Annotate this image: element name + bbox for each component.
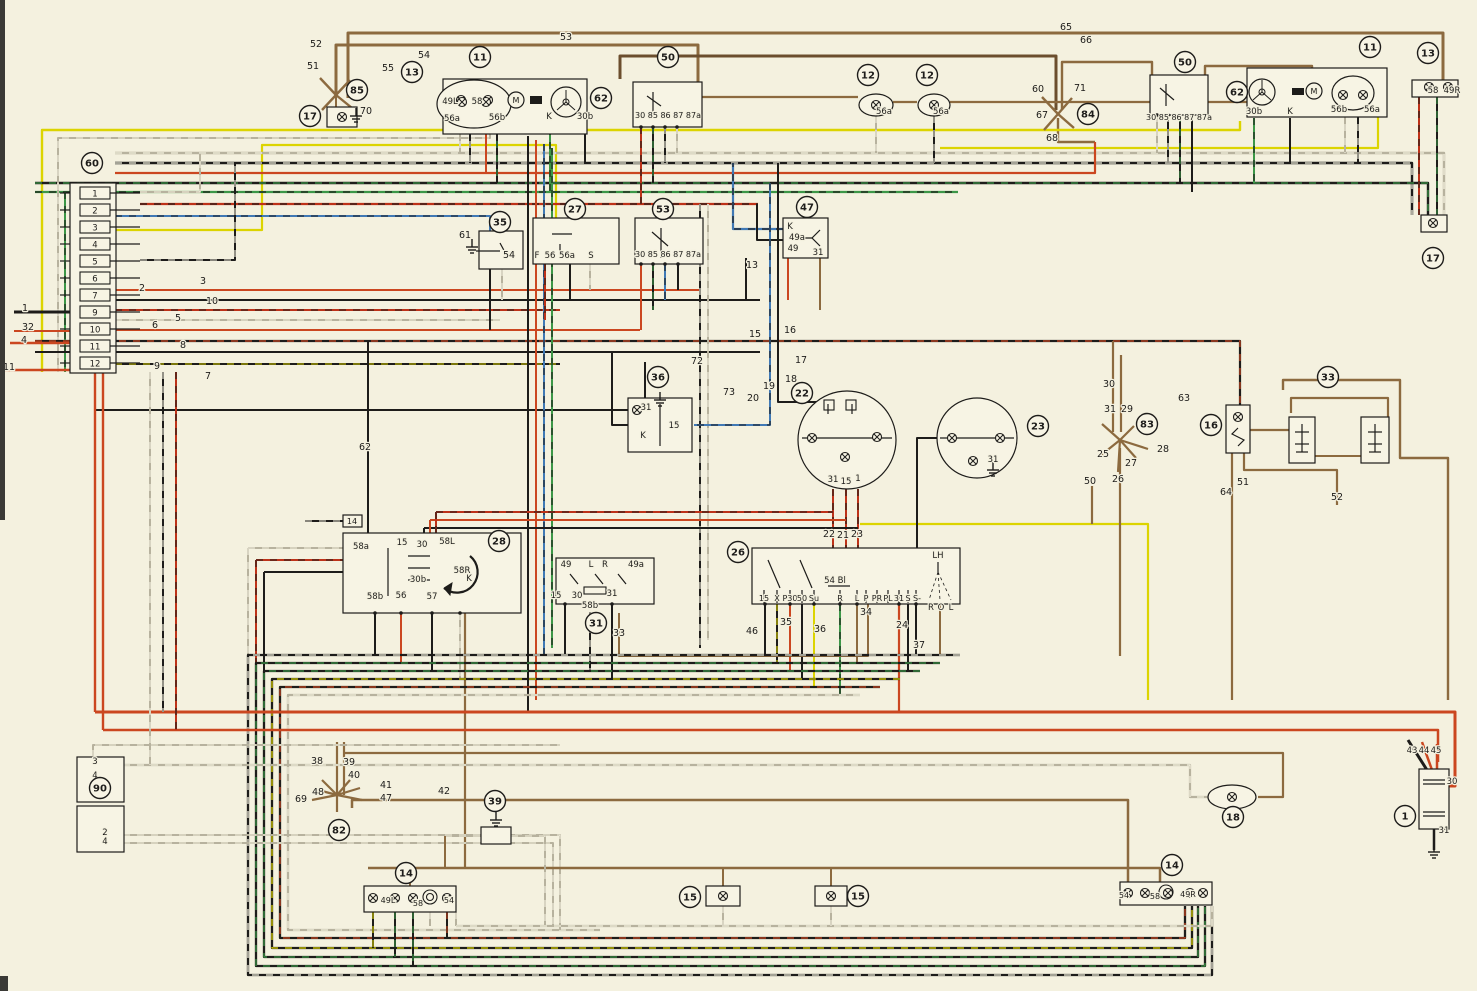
wire <box>95 712 1455 786</box>
wire <box>320 78 336 95</box>
wire-label: 15 <box>841 477 852 487</box>
component-number: 23 <box>1031 422 1045 433</box>
wire <box>123 843 553 926</box>
wire-label: PL <box>883 594 893 603</box>
wire-label: 54 <box>503 250 515 261</box>
wire-layer <box>4 33 1455 975</box>
component-number: 17 <box>303 112 317 123</box>
wire-label: 50 <box>1084 476 1096 487</box>
wire-label: 14 <box>347 517 357 526</box>
component-number: 83 <box>1140 420 1154 431</box>
wire-label: 31 <box>641 403 652 413</box>
component-number: 35 <box>493 218 507 229</box>
scan-edge <box>0 0 5 520</box>
component-number: 14 <box>399 869 413 880</box>
wire-label: 30 <box>572 591 583 601</box>
wire-label: 70 <box>360 106 372 117</box>
wire-label: 30b <box>577 112 593 122</box>
wire-label: PR <box>872 594 883 603</box>
wire-label: 41 <box>380 780 392 791</box>
terminal-dot <box>651 125 655 129</box>
wire-label: 19 <box>763 381 775 392</box>
wire-label: 31 <box>607 589 618 599</box>
fuse-number: 7 <box>92 292 97 302</box>
component-number: 28 <box>492 537 506 548</box>
wire-label: L <box>949 603 954 613</box>
component-box <box>481 827 511 844</box>
wire <box>337 795 362 800</box>
component-number: 11 <box>1363 43 1377 54</box>
wire-label: 30 <box>1103 379 1115 390</box>
wire-label: K <box>787 222 793 232</box>
wire-label: 13 <box>746 260 758 271</box>
component-number: 60 <box>85 159 99 170</box>
wire-label: 58 <box>472 97 483 107</box>
wire-label: 53 <box>560 32 572 43</box>
wire-label: 71 <box>1074 83 1086 94</box>
wiring-diagram-page: 1234567910111252515554537049L5856a56bK30… <box>0 0 1477 991</box>
wire-label: 58 <box>413 899 423 908</box>
wire <box>35 341 1240 406</box>
wire-label: 48 <box>312 787 324 798</box>
wire-label: 49L <box>442 97 458 107</box>
wire-stripe <box>256 663 1205 966</box>
wire-label: 30b <box>1246 107 1262 117</box>
component-box <box>633 82 702 127</box>
wire-label: 54 Bl <box>824 576 846 586</box>
wire-label: 51 <box>307 61 319 72</box>
wire-label: 49a <box>789 233 805 243</box>
wire-label: 29 <box>1121 404 1133 415</box>
wire-label: 56a <box>933 107 949 117</box>
wire-label: 10 <box>206 296 218 307</box>
wire-label: 58b <box>582 601 598 611</box>
wire-label: 25 <box>1097 449 1109 460</box>
wire-label: 57 <box>427 592 438 602</box>
wire-label: 56a <box>876 107 892 117</box>
wire-label: S- <box>913 594 921 603</box>
wire-label: 46 <box>746 626 758 637</box>
wire-label: LH <box>932 551 943 561</box>
wire-label: X <box>774 594 780 603</box>
component-number: 62 <box>1230 88 1244 99</box>
wire-stripe <box>115 163 1412 215</box>
wire-label: 32 <box>22 322 34 333</box>
connector-block <box>1292 88 1304 95</box>
wire-label: 3 <box>200 276 206 287</box>
wire-label: 50 <box>797 594 807 603</box>
wire <box>35 183 1428 215</box>
wire <box>1058 114 1074 128</box>
wire-label: 47 <box>380 793 392 804</box>
wire-label: 30 <box>1447 777 1458 787</box>
component-number: 39 <box>488 797 502 808</box>
wire-label: 56a <box>1364 105 1380 115</box>
fuse-number: 1 <box>92 190 97 200</box>
component-number: 62 <box>594 94 608 105</box>
wire-label: 6 <box>152 320 158 331</box>
wire-stripe <box>123 843 553 926</box>
wire-label: 73 <box>723 387 735 398</box>
component-number: 17 <box>1426 254 1440 265</box>
wire-label: K <box>640 431 646 441</box>
component-number: 12 <box>920 71 934 82</box>
wire-label: 49a <box>628 560 644 570</box>
terminal-dot <box>639 262 643 266</box>
wire <box>511 836 545 926</box>
wire-label: 54 <box>418 50 430 61</box>
wire-label: 66 <box>1080 35 1092 46</box>
wire <box>368 868 1160 884</box>
wire-label: 28 <box>1157 444 1169 455</box>
terminal-dot <box>676 262 680 266</box>
wire-label: 63 <box>1178 393 1190 404</box>
wire <box>123 765 1208 797</box>
wire-label: K <box>546 112 552 122</box>
wire-label: 30 85 86 87 87a <box>1146 113 1212 122</box>
wire-label: R <box>837 594 843 603</box>
wire-label: 43 <box>1407 746 1418 756</box>
wire-label: 4 <box>102 837 107 847</box>
component-number: 84 <box>1081 110 1095 121</box>
component-number: 26 <box>731 548 745 559</box>
terminal-dot <box>639 125 643 129</box>
fuse-number: 5 <box>92 258 97 268</box>
wire-label: 37 <box>913 640 925 651</box>
wire-label: 30b <box>410 575 426 585</box>
wire-stripe <box>58 130 490 372</box>
wire-label: K <box>1287 107 1293 117</box>
component-number: 15 <box>683 893 697 904</box>
terminal-dot <box>663 262 667 266</box>
wire-label: 52 <box>1331 492 1343 503</box>
wire-label: P30 <box>782 594 797 603</box>
wire-stripe <box>511 836 545 926</box>
wire-label: 27 <box>1125 458 1137 469</box>
component-number: 90 <box>93 784 107 795</box>
wire-label: 21 <box>837 530 849 541</box>
wire-label: 61 <box>459 230 471 241</box>
wire <box>256 663 1205 966</box>
wire-label: 34 <box>860 607 872 618</box>
wire-label: 42 <box>438 786 450 797</box>
component-number: 31 <box>589 619 603 630</box>
wire-stripe <box>140 163 235 260</box>
component-number: 12 <box>861 71 875 82</box>
wire-label: 31 <box>813 248 824 258</box>
wire-label: 9 <box>154 361 160 372</box>
component-number: 53 <box>656 205 670 216</box>
wire-label: 64 <box>1220 487 1232 498</box>
wire-stripe <box>456 906 1212 926</box>
wire-label: M <box>513 96 520 105</box>
component-box <box>1419 769 1449 829</box>
component-number: 50 <box>661 53 675 64</box>
wire <box>4 370 103 730</box>
wire-label: P <box>864 594 869 603</box>
terminal-dot <box>399 611 403 615</box>
wire-label: 49R <box>1180 890 1196 899</box>
terminal-dot <box>675 125 679 129</box>
fuse-number: 9 <box>92 309 97 319</box>
wire-label: 1 <box>855 474 860 484</box>
wire-stripe <box>35 183 1428 215</box>
wire-label: R <box>602 560 608 570</box>
wire-label: 15 <box>749 329 761 340</box>
wire-label: 16 <box>784 325 796 336</box>
wire-label: S <box>905 594 910 603</box>
wire-label: 62 <box>359 442 371 453</box>
connector-block <box>530 96 542 104</box>
wire-label: 58L <box>439 537 455 547</box>
wire-label: 15 <box>669 421 680 431</box>
wire-label: 56b <box>489 113 505 123</box>
scan-edge <box>0 976 8 991</box>
wire-label: 2 <box>139 283 145 294</box>
wiring-diagram-svg: 1234567910111252515554537049L5856a56bK30… <box>0 0 1477 991</box>
wire-label: M <box>1311 87 1318 96</box>
wire-label: 30 85 86 87 87a <box>635 111 701 120</box>
wire-label: 15 <box>759 594 769 603</box>
component-number: 85 <box>350 86 364 97</box>
wire-label: 55 <box>382 63 394 74</box>
wire-label: 56a <box>444 114 460 124</box>
wire-label: 67 <box>1036 110 1048 121</box>
wire <box>456 906 1212 926</box>
component-number: 15 <box>851 892 865 903</box>
wire-label: 23 <box>851 529 863 540</box>
wire-label: L <box>589 560 594 570</box>
wire <box>58 130 490 372</box>
wire <box>140 163 235 260</box>
wire-label: 15 <box>551 591 562 601</box>
wire-label: 4 <box>21 335 27 346</box>
wire-label: 54 <box>1119 891 1129 900</box>
wire <box>93 745 560 757</box>
wire-stripe <box>93 745 560 757</box>
wire-label: 31 <box>1104 404 1116 415</box>
wire-label: 72 <box>691 356 703 367</box>
wire-label: 17 <box>795 355 807 366</box>
wire-label: 44 <box>1419 746 1430 756</box>
fuse-number: 4 <box>92 241 97 251</box>
component-box <box>479 231 523 269</box>
terminal-dot <box>563 602 567 606</box>
wire-label: 58b <box>367 592 383 602</box>
wire-label: Su <box>809 594 819 603</box>
component-number: 13 <box>1421 49 1435 60</box>
wire-label: 58 <box>1428 86 1439 96</box>
wire-label: 56a <box>559 251 575 261</box>
component-number: 1 <box>1402 812 1409 823</box>
component-box <box>1150 75 1208 115</box>
wire-label: 54 <box>444 896 454 905</box>
wire-label: S <box>588 251 593 261</box>
fuse-number: 12 <box>90 360 101 370</box>
wire-label: K <box>466 574 472 584</box>
wire-label: 30 85 86 87 87a <box>635 250 701 259</box>
wire-label: 31 <box>988 455 999 465</box>
wire-label: 36 <box>814 624 826 635</box>
wire-label: 5 <box>175 313 181 324</box>
wire-label: 68 <box>1046 133 1058 144</box>
fuse-number: 11 <box>90 343 101 353</box>
wire-label: 30 <box>417 540 428 550</box>
wire <box>917 438 937 548</box>
component-number: 50 <box>1178 58 1192 69</box>
terminal-dot <box>458 611 462 615</box>
wire-label: 31 <box>828 475 839 485</box>
terminal-dot <box>610 602 614 606</box>
wire-label: 58 <box>1150 892 1160 901</box>
wire-label: 60 <box>1032 84 1044 95</box>
wire <box>619 604 868 656</box>
wire-label: R <box>928 603 934 613</box>
wire-label: 49R <box>1444 86 1461 96</box>
wire <box>123 835 560 930</box>
wire-label: 52 <box>310 39 322 50</box>
terminal-dot <box>651 262 655 266</box>
wire <box>115 163 1412 215</box>
wire-label: 31 <box>1439 826 1450 836</box>
wire <box>1291 398 1388 417</box>
wire-label: 58a <box>353 542 369 552</box>
wire-label: 65 <box>1060 22 1072 33</box>
wire-label: 69 <box>295 794 307 805</box>
wire-label: 49 <box>788 244 799 254</box>
component-number: 13 <box>405 68 419 79</box>
fuse-number: 3 <box>92 224 97 234</box>
wire <box>1102 424 1120 440</box>
component-number: 11 <box>473 53 487 64</box>
wire-label: 39 <box>343 757 355 768</box>
wire-label: 31 <box>894 594 904 603</box>
wire-label: 18 <box>785 374 797 385</box>
wire-label: 20 <box>747 393 759 404</box>
wire-label: 3 <box>92 757 97 767</box>
wire-label: 56 <box>545 251 556 261</box>
wire-label: 45 <box>1431 746 1442 756</box>
wire-stripe <box>115 216 490 231</box>
fuse-number: 10 <box>90 326 101 336</box>
component-number: 27 <box>568 205 582 216</box>
terminal-dot <box>430 611 434 615</box>
component-number: 18 <box>1226 813 1240 824</box>
component-number: 14 <box>1165 861 1179 872</box>
wire-label: 15 <box>397 538 408 548</box>
component-number: 22 <box>795 389 809 400</box>
wire-label: 8 <box>180 340 186 351</box>
wire <box>10 343 95 712</box>
wire-label: 56 <box>396 591 407 601</box>
wire-label: 35 <box>780 617 792 628</box>
wire <box>115 216 490 231</box>
component-number: 16 <box>1204 421 1218 432</box>
wire-label: 49L <box>381 896 396 905</box>
wire <box>345 753 1283 797</box>
wire-stripe <box>264 671 1198 957</box>
wire-label: 26 <box>1112 474 1124 485</box>
wire-stripe <box>123 765 1208 797</box>
wire-stripe <box>35 341 1240 406</box>
terminal-dot <box>663 125 667 129</box>
wire-label: L <box>855 594 860 603</box>
component-number: 47 <box>800 203 814 214</box>
wire-label: 40 <box>348 770 360 781</box>
terminal-dot <box>373 611 377 615</box>
fuse-number: 2 <box>92 207 97 217</box>
fuse-number: 6 <box>92 275 97 285</box>
wire-label: F <box>535 251 540 261</box>
component-box <box>77 806 124 852</box>
wire-label: 24 <box>896 620 908 631</box>
component-number: 82 <box>332 826 346 837</box>
component-number: 33 <box>1321 373 1335 384</box>
wire <box>612 352 628 425</box>
wire-label: 7 <box>205 371 211 382</box>
wire-label: 56b <box>1331 105 1347 115</box>
wire-label: 1 <box>22 303 28 314</box>
wire-label: 38 <box>311 756 323 767</box>
wire <box>264 671 1198 957</box>
component-number: 36 <box>651 373 665 384</box>
wire-label: 22 <box>823 529 835 540</box>
wire <box>1058 98 1072 114</box>
wire-stripe <box>123 835 560 930</box>
wire-label: 51 <box>1237 477 1249 488</box>
wire-label: 49 <box>561 560 572 570</box>
wire-label: 33 <box>613 628 625 639</box>
wire-label: O <box>938 603 945 613</box>
